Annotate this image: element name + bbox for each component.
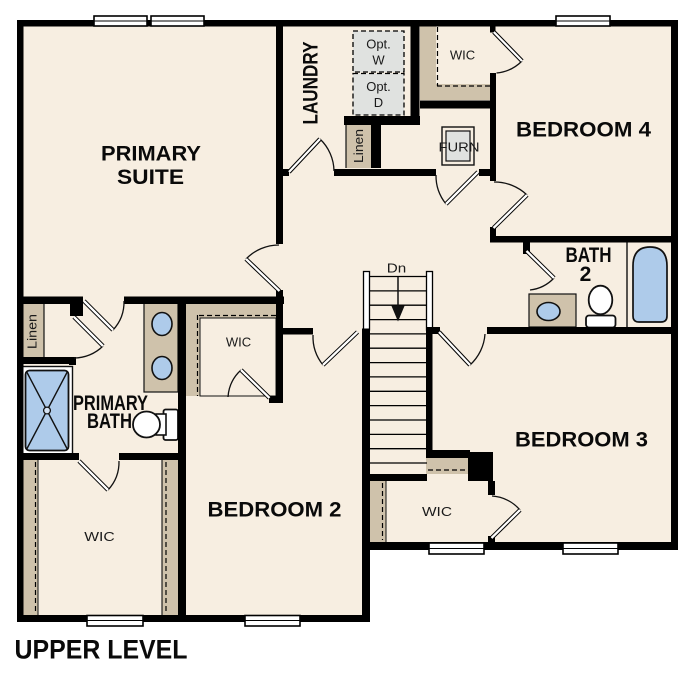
svg-text:2: 2 <box>580 263 592 286</box>
svg-text:UPPER LEVEL: UPPER LEVEL <box>15 635 188 665</box>
svg-text:BEDROOM 4: BEDROOM 4 <box>516 119 651 142</box>
svg-text:Opt.: Opt. <box>366 79 391 94</box>
svg-text:BEDROOM 2: BEDROOM 2 <box>208 499 342 522</box>
svg-text:Dn: Dn <box>387 261 407 276</box>
svg-text:WIC: WIC <box>450 48 475 63</box>
svg-text:WIC: WIC <box>84 529 115 544</box>
svg-text:BEDROOM 3: BEDROOM 3 <box>515 429 648 452</box>
svg-text:Opt.: Opt. <box>366 37 391 52</box>
svg-text:BATH: BATH <box>87 410 132 433</box>
svg-text:W: W <box>372 53 385 68</box>
svg-text:WIC: WIC <box>226 335 251 350</box>
svg-text:FURN: FURN <box>439 140 480 155</box>
svg-text:WIC: WIC <box>422 504 452 519</box>
svg-text:SUITE: SUITE <box>117 166 184 189</box>
svg-text:Linen: Linen <box>351 129 366 163</box>
svg-text:Linen: Linen <box>25 314 40 349</box>
svg-text:D: D <box>374 95 383 110</box>
svg-text:PRIMARY: PRIMARY <box>101 143 201 166</box>
svg-text:LAUNDRY: LAUNDRY <box>300 42 323 125</box>
